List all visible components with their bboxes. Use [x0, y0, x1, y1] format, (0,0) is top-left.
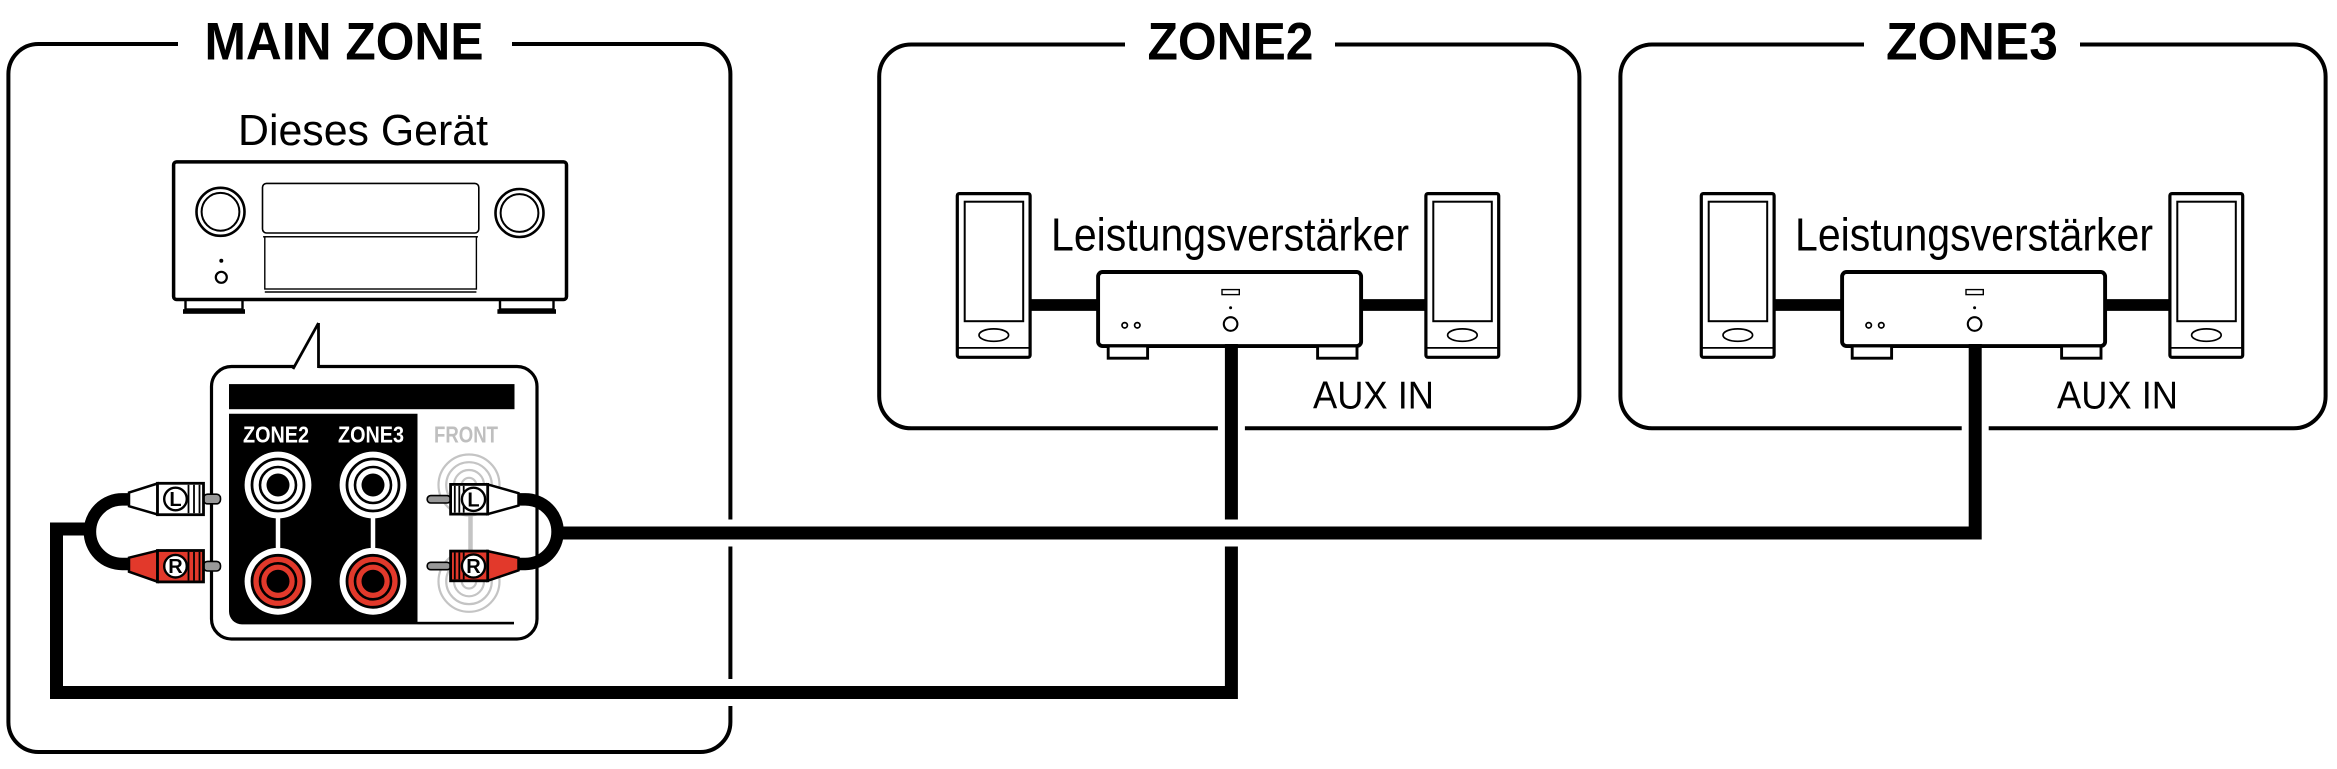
- svg-text:MAIN ZONE: MAIN ZONE: [205, 13, 484, 72]
- svg-text:R: R: [466, 556, 481, 578]
- svg-text:ZONE3: ZONE3: [338, 422, 404, 448]
- svg-text:Dieses Gerät: Dieses Gerät: [238, 106, 488, 155]
- svg-text:ZONE2: ZONE2: [1148, 13, 1314, 72]
- svg-text:Leistungsverstärker: Leistungsverstärker: [1795, 209, 2153, 261]
- svg-text:AUX IN: AUX IN: [2057, 374, 2178, 417]
- svg-text:FRONT: FRONT: [434, 422, 498, 448]
- svg-text:ZONE3: ZONE3: [1886, 13, 2058, 72]
- svg-text:L: L: [169, 489, 181, 511]
- svg-text:AUX IN: AUX IN: [1313, 374, 1434, 417]
- svg-text:L: L: [467, 489, 479, 511]
- svg-text:R: R: [168, 556, 183, 578]
- svg-text:Leistungsverstärker: Leistungsverstärker: [1051, 209, 1409, 261]
- svg-text:ZONE2: ZONE2: [243, 422, 309, 448]
